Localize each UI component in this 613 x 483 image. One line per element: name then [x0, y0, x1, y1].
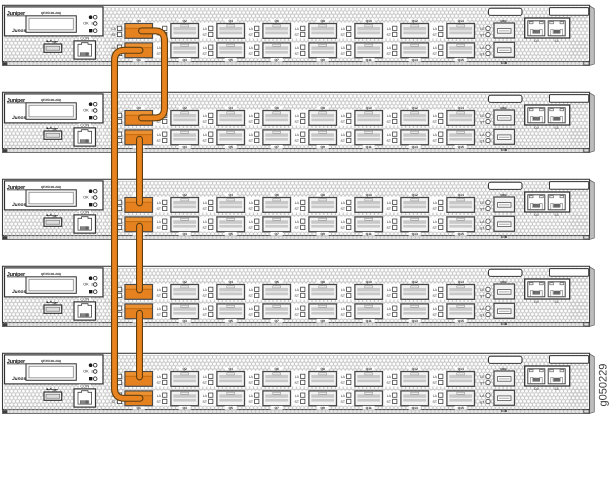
- svg-text:LA: LA: [341, 375, 346, 379]
- svg-text:Q11: Q11: [366, 145, 372, 149]
- svg-text:Q8: Q8: [320, 19, 325, 23]
- svg-text:CON: CON: [80, 297, 89, 302]
- svg-text:C1: C1: [555, 300, 559, 304]
- svg-text:C0: C0: [534, 126, 538, 130]
- svg-text:LA: LA: [387, 46, 392, 50]
- svg-text:Q7: Q7: [274, 406, 279, 410]
- svg-text:Q8: Q8: [320, 367, 325, 371]
- svg-text:!: !: [91, 195, 92, 200]
- svg-text:LA: LA: [295, 46, 300, 50]
- svg-text:Q15: Q15: [458, 58, 464, 62]
- svg-text:LA: LA: [157, 394, 162, 398]
- svg-text:Q12: Q12: [412, 19, 418, 23]
- svg-text:LA: LA: [249, 375, 254, 379]
- svg-text:Q15: Q15: [458, 319, 464, 323]
- svg-text:C0: C0: [534, 39, 538, 43]
- svg-text:Q6: Q6: [274, 19, 279, 23]
- svg-text:LA: LA: [203, 46, 208, 50]
- svg-text:Q7: Q7: [274, 232, 279, 236]
- svg-text:OK: OK: [83, 370, 89, 374]
- svg-text:LA: LA: [341, 201, 346, 205]
- svg-text:LA: LA: [433, 288, 438, 292]
- svg-text:Q14: Q14: [458, 193, 464, 197]
- svg-text:CON: CON: [80, 384, 89, 389]
- svg-text:LA: LA: [295, 307, 300, 311]
- svg-text:C0G: C0G: [500, 193, 507, 197]
- svg-text:LA: LA: [387, 375, 392, 379]
- svg-text:Q10: Q10: [366, 19, 372, 23]
- svg-text:C1: C1: [555, 213, 559, 217]
- svg-text:Q13: Q13: [412, 58, 418, 62]
- svg-text:QFX5100-24Q: QFX5100-24Q: [41, 11, 62, 15]
- svg-text:Q7: Q7: [274, 145, 279, 149]
- svg-text:LA: LA: [480, 46, 485, 50]
- svg-text:Junos: Junos: [12, 376, 26, 382]
- svg-text:Q9: Q9: [320, 406, 325, 410]
- svg-text:Q4: Q4: [228, 19, 233, 23]
- svg-text:OK: OK: [83, 22, 89, 26]
- svg-text:C0G: C0G: [500, 367, 507, 371]
- svg-text:Q1: Q1: [136, 58, 141, 62]
- svg-text:LA: LA: [249, 133, 254, 137]
- svg-text:LA: LA: [433, 201, 438, 205]
- svg-text:LA: LA: [341, 394, 346, 398]
- svg-text:LA: LA: [433, 46, 438, 50]
- svg-text:Q0: Q0: [136, 19, 141, 23]
- svg-text:LA: LA: [295, 114, 300, 118]
- svg-text:LA: LA: [480, 201, 485, 205]
- svg-text:LA: LA: [341, 133, 346, 137]
- svg-text:Q4: Q4: [228, 106, 233, 110]
- svg-text:Q10: Q10: [366, 193, 372, 197]
- svg-text:LA: LA: [480, 220, 485, 224]
- svg-text:LA: LA: [480, 394, 485, 398]
- svg-text:LA: LA: [203, 133, 208, 137]
- svg-text:!: !: [91, 108, 92, 113]
- svg-text:LA: LA: [157, 46, 162, 50]
- svg-text:C1B: C1B: [501, 61, 508, 65]
- svg-text:LA: LA: [295, 201, 300, 205]
- svg-text:LA: LA: [433, 220, 438, 224]
- svg-text:OK: OK: [83, 283, 89, 287]
- svg-text:OK: OK: [83, 109, 89, 113]
- svg-text:Q2: Q2: [182, 280, 187, 284]
- svg-text:LA: LA: [295, 220, 300, 224]
- svg-text:Q10: Q10: [366, 367, 372, 371]
- svg-text:LA: LA: [480, 27, 485, 31]
- svg-text:LA: LA: [433, 27, 438, 31]
- svg-text:Q5: Q5: [228, 406, 233, 410]
- svg-text:OK: OK: [83, 196, 89, 200]
- svg-text:Q3: Q3: [182, 145, 187, 149]
- svg-text:C0G: C0G: [500, 19, 507, 23]
- svg-text:Q8: Q8: [320, 193, 325, 197]
- svg-text:LA: LA: [203, 394, 208, 398]
- svg-text:Q12: Q12: [412, 280, 418, 284]
- svg-text:Q4: Q4: [228, 280, 233, 284]
- svg-text:LA: LA: [249, 220, 254, 224]
- svg-text:Q10: Q10: [366, 280, 372, 284]
- svg-text:Q8: Q8: [320, 106, 325, 110]
- svg-text:LA: LA: [387, 220, 392, 224]
- svg-text:Q4: Q4: [228, 367, 233, 371]
- svg-text:LA: LA: [157, 288, 162, 292]
- svg-text:Q6: Q6: [274, 193, 279, 197]
- svg-text:LA: LA: [387, 288, 392, 292]
- svg-text:Q9: Q9: [320, 232, 325, 236]
- svg-text:Q9: Q9: [320, 319, 325, 323]
- svg-text:Q12: Q12: [412, 367, 418, 371]
- svg-text:Q8: Q8: [320, 280, 325, 284]
- svg-text:Q12: Q12: [412, 106, 418, 110]
- svg-text:LA: LA: [480, 288, 485, 292]
- svg-text:LA: LA: [480, 133, 485, 137]
- svg-text:!: !: [91, 369, 92, 374]
- svg-text:LA: LA: [387, 114, 392, 118]
- svg-text:LA: LA: [157, 375, 162, 379]
- svg-text:LA: LA: [249, 307, 254, 311]
- svg-text:QFX5100-24Q: QFX5100-24Q: [41, 185, 62, 189]
- svg-text:LA: LA: [249, 201, 254, 205]
- svg-text:LA: LA: [341, 114, 346, 118]
- svg-text:C0: C0: [534, 300, 538, 304]
- svg-text:Q12: Q12: [412, 193, 418, 197]
- svg-text:Q6: Q6: [274, 106, 279, 110]
- svg-text:C0G: C0G: [500, 280, 507, 284]
- svg-text:LA: LA: [249, 288, 254, 292]
- svg-text:LA: LA: [203, 114, 208, 118]
- svg-text:Q11: Q11: [366, 319, 372, 323]
- svg-text:LA: LA: [249, 114, 254, 118]
- svg-text:LA: LA: [387, 27, 392, 31]
- svg-text:Q5: Q5: [228, 58, 233, 62]
- svg-text:LA: LA: [295, 394, 300, 398]
- svg-text:Q2: Q2: [182, 19, 187, 23]
- svg-text:!: !: [91, 21, 92, 26]
- svg-text:LA: LA: [387, 307, 392, 311]
- svg-text:Q3: Q3: [182, 406, 187, 410]
- svg-text:QFX5100-24Q: QFX5100-24Q: [41, 272, 62, 276]
- svg-text:LA: LA: [341, 288, 346, 292]
- svg-text:LA: LA: [203, 307, 208, 311]
- svg-text:Q10: Q10: [366, 106, 372, 110]
- svg-text:LA: LA: [203, 27, 208, 31]
- svg-text:C0: C0: [534, 387, 538, 391]
- svg-text:C1B: C1B: [501, 322, 508, 326]
- svg-text:Q7: Q7: [274, 58, 279, 62]
- svg-text:CON: CON: [80, 210, 89, 215]
- svg-text:LA: LA: [112, 27, 117, 31]
- svg-text:Q3: Q3: [182, 319, 187, 323]
- svg-text:LA: LA: [203, 288, 208, 292]
- svg-text:Q9: Q9: [320, 145, 325, 149]
- svg-text:Q13: Q13: [412, 406, 418, 410]
- svg-text:Q13: Q13: [412, 145, 418, 149]
- svg-text:Junos: Junos: [12, 115, 26, 121]
- svg-text:LA: LA: [433, 114, 438, 118]
- svg-text:Q0: Q0: [136, 106, 141, 110]
- svg-text:LA: LA: [433, 307, 438, 311]
- svg-text:QFX5100-24Q: QFX5100-24Q: [41, 98, 62, 102]
- svg-text:LA: LA: [295, 133, 300, 137]
- svg-text:Q15: Q15: [458, 145, 464, 149]
- svg-text:Q5: Q5: [228, 232, 233, 236]
- svg-text:Junos: Junos: [12, 202, 26, 208]
- svg-text:Junos: Junos: [12, 28, 26, 34]
- svg-text:g050229: g050229: [598, 364, 610, 407]
- svg-text:C1B: C1B: [501, 235, 508, 239]
- svg-text:LA: LA: [295, 288, 300, 292]
- svg-text:LA: LA: [387, 133, 392, 137]
- svg-text:Q14: Q14: [458, 367, 464, 371]
- svg-text:LA: LA: [341, 307, 346, 311]
- svg-text:LA: LA: [157, 307, 162, 311]
- svg-text:Q14: Q14: [458, 106, 464, 110]
- svg-text:Q2: Q2: [182, 106, 187, 110]
- svg-text:Q13: Q13: [412, 232, 418, 236]
- svg-text:Q7: Q7: [274, 319, 279, 323]
- svg-text:Q13: Q13: [412, 319, 418, 323]
- svg-text:LA: LA: [341, 220, 346, 224]
- svg-text:Junos: Junos: [12, 289, 26, 295]
- svg-text:LA: LA: [387, 201, 392, 205]
- svg-text:LA: LA: [387, 394, 392, 398]
- svg-text:C1: C1: [555, 387, 559, 391]
- svg-text:LA: LA: [341, 27, 346, 31]
- svg-text:Q11: Q11: [366, 232, 372, 236]
- svg-text:C1B: C1B: [501, 148, 508, 152]
- svg-text:LA: LA: [249, 46, 254, 50]
- svg-text:Q3: Q3: [182, 58, 187, 62]
- svg-text:LA: LA: [157, 133, 162, 137]
- svg-text:LA: LA: [203, 375, 208, 379]
- svg-text:LA: LA: [433, 394, 438, 398]
- svg-text:QFX5100-24Q: QFX5100-24Q: [41, 359, 62, 363]
- svg-text:LA: LA: [341, 46, 346, 50]
- svg-text:Q3: Q3: [182, 232, 187, 236]
- svg-text:LA: LA: [203, 201, 208, 205]
- svg-text:LA: LA: [433, 375, 438, 379]
- svg-text:CON: CON: [80, 36, 89, 41]
- svg-text:LA: LA: [433, 133, 438, 137]
- svg-text:Q15: Q15: [458, 232, 464, 236]
- svg-text:LA: LA: [157, 220, 162, 224]
- svg-text:Q4: Q4: [228, 193, 233, 197]
- svg-text:Q2: Q2: [182, 193, 187, 197]
- svg-text:Q1: Q1: [136, 406, 141, 410]
- svg-text:Q14: Q14: [458, 280, 464, 284]
- svg-text:C1B: C1B: [501, 409, 508, 413]
- svg-text:LA: LA: [249, 394, 254, 398]
- svg-text:LA: LA: [249, 27, 254, 31]
- svg-text:Q2: Q2: [182, 367, 187, 371]
- svg-text:C1: C1: [555, 126, 559, 130]
- svg-text:LA: LA: [480, 375, 485, 379]
- svg-text:LA: LA: [157, 201, 162, 205]
- svg-text:LA: LA: [295, 375, 300, 379]
- svg-text:Q5: Q5: [228, 319, 233, 323]
- svg-text:LA: LA: [480, 114, 485, 118]
- svg-text:Q11: Q11: [366, 406, 372, 410]
- svg-text:Q11: Q11: [366, 58, 372, 62]
- svg-text:Q5: Q5: [228, 145, 233, 149]
- svg-text:CON: CON: [80, 123, 89, 128]
- svg-text:C0G: C0G: [500, 106, 507, 110]
- svg-text:!: !: [91, 282, 92, 287]
- svg-text:C0: C0: [534, 213, 538, 217]
- svg-text:Q15: Q15: [458, 406, 464, 410]
- svg-text:Q14: Q14: [458, 19, 464, 23]
- svg-text:C1: C1: [555, 39, 559, 43]
- svg-text:LA: LA: [480, 307, 485, 311]
- svg-text:LA: LA: [203, 220, 208, 224]
- svg-text:LA: LA: [295, 27, 300, 31]
- svg-text:Q9: Q9: [320, 58, 325, 62]
- svg-text:Q6: Q6: [274, 280, 279, 284]
- svg-text:Q6: Q6: [274, 367, 279, 371]
